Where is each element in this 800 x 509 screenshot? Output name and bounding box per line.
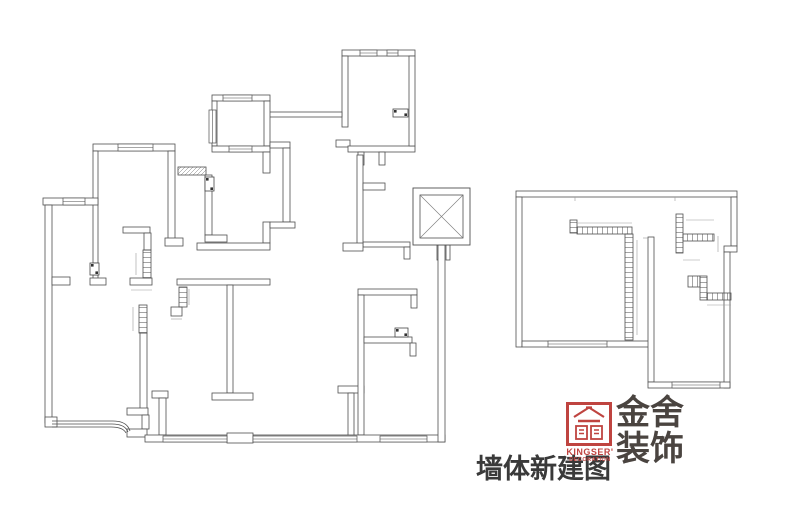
- logo-brand-en-sub: DECORATION: [564, 457, 616, 463]
- logo-brand-en: KINGSER': [564, 447, 616, 457]
- kingser-logo-icon: [566, 402, 612, 446]
- logo-brand-cn-line2: 装饰: [616, 432, 696, 468]
- company-logo: KINGSER' DECORATION 金舍 装饰: [566, 402, 696, 472]
- annex-plan: [516, 191, 737, 388]
- main-plan: [43, 50, 470, 443]
- logo-brand-cn: 金舍 装饰: [616, 396, 696, 468]
- drawing-canvas: 墙体新建图 KINGSER' DECORATION 金舍 装饰: [0, 0, 800, 509]
- logo-brand-cn-line1: 金舍: [616, 396, 696, 432]
